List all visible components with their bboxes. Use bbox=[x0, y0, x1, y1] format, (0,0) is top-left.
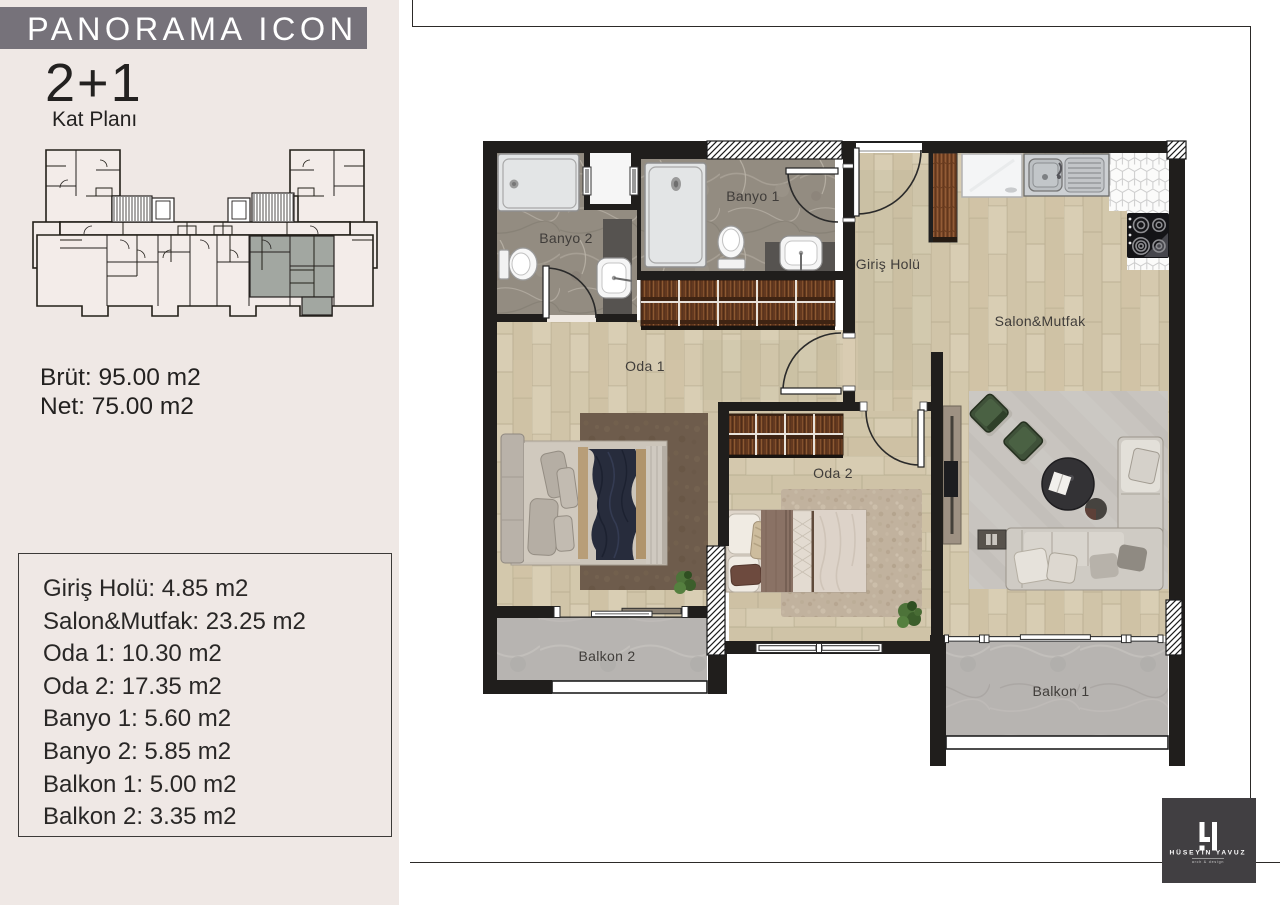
svg-text:Giriş Holü: Giriş Holü bbox=[856, 256, 920, 272]
svg-text:arch & design: arch & design bbox=[1192, 860, 1224, 864]
svg-text:Oda 1: Oda 1 bbox=[625, 358, 665, 374]
svg-text:Oda 2: Oda 2 bbox=[813, 465, 853, 481]
svg-text:Balkon 1: Balkon 1 bbox=[1033, 683, 1090, 699]
svg-text:Salon&Mutfak: Salon&Mutfak bbox=[995, 313, 1086, 329]
svg-text:HÜSEYİN YAVUZ: HÜSEYİN YAVUZ bbox=[1170, 848, 1247, 857]
svg-text:Banyo 1: Banyo 1 bbox=[726, 188, 779, 204]
svg-text:Balkon 2: Balkon 2 bbox=[579, 648, 636, 664]
svg-text:Banyo 2: Banyo 2 bbox=[539, 230, 592, 246]
